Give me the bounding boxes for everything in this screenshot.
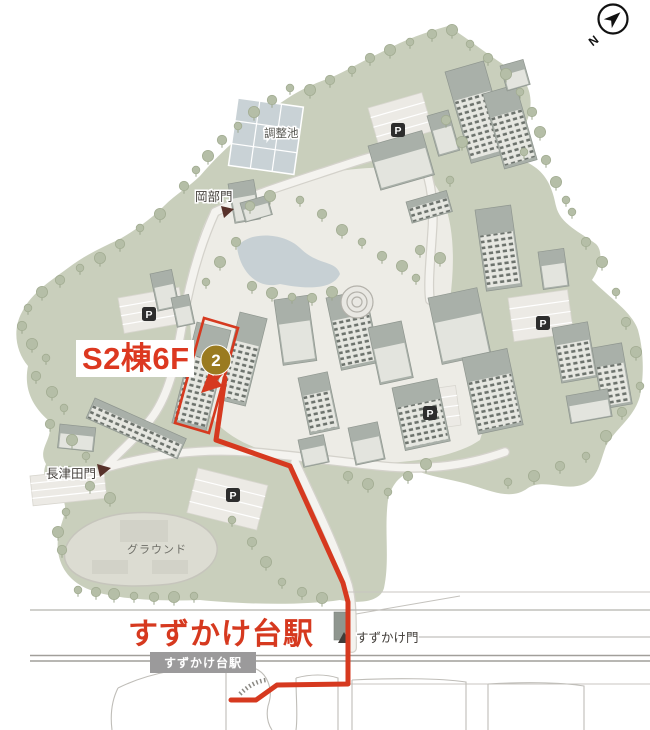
parking-icon: P [142, 307, 156, 321]
gate-suzukake-label: すずかけ門 [356, 631, 419, 645]
ground-label: グラウンド [127, 542, 187, 556]
gate-nagatsuta-label: 長津田門 [46, 467, 96, 481]
parking-icon: P [423, 406, 437, 420]
svg-text:P: P [145, 309, 152, 321]
svg-text:P: P [539, 318, 546, 330]
compass-north-letter: N [586, 33, 601, 49]
svg-text:P: P [426, 408, 433, 420]
station-stairs [240, 680, 266, 694]
destination-marker: 2 [201, 345, 231, 375]
gate-suzukake: すずかけ門 [338, 631, 650, 645]
station-large-label: すずかけ台駅 [128, 617, 314, 651]
campus-map: すずかけ台駅 岡部門 長津田門 すずかけ門 調整池 グラウンド PPPPP 2 … [0, 0, 650, 730]
circular-plaza [341, 286, 373, 318]
gate-okabe-label: 岡部門 [195, 189, 233, 204]
pond-label: 調整池 [264, 126, 299, 140]
svg-text:P: P [394, 125, 401, 137]
campus-map-svg: すずかけ台駅 岡部門 長津田門 すずかけ門 調整池 グラウンド PPPPP 2 … [0, 0, 650, 730]
compass: N [586, 5, 628, 50]
station-platform: すずかけ台駅 [150, 652, 256, 673]
destination-marker-number: 2 [211, 351, 220, 370]
destination-label: S2棟6F [82, 341, 190, 376]
destination-label-group: S2棟6F [76, 340, 194, 377]
station-platform-label: すずかけ台駅 [164, 655, 242, 670]
parking-icon: P [536, 316, 550, 330]
svg-text:P: P [229, 490, 236, 502]
parking-icon: P [391, 123, 405, 137]
parking-icon: P [226, 488, 240, 502]
